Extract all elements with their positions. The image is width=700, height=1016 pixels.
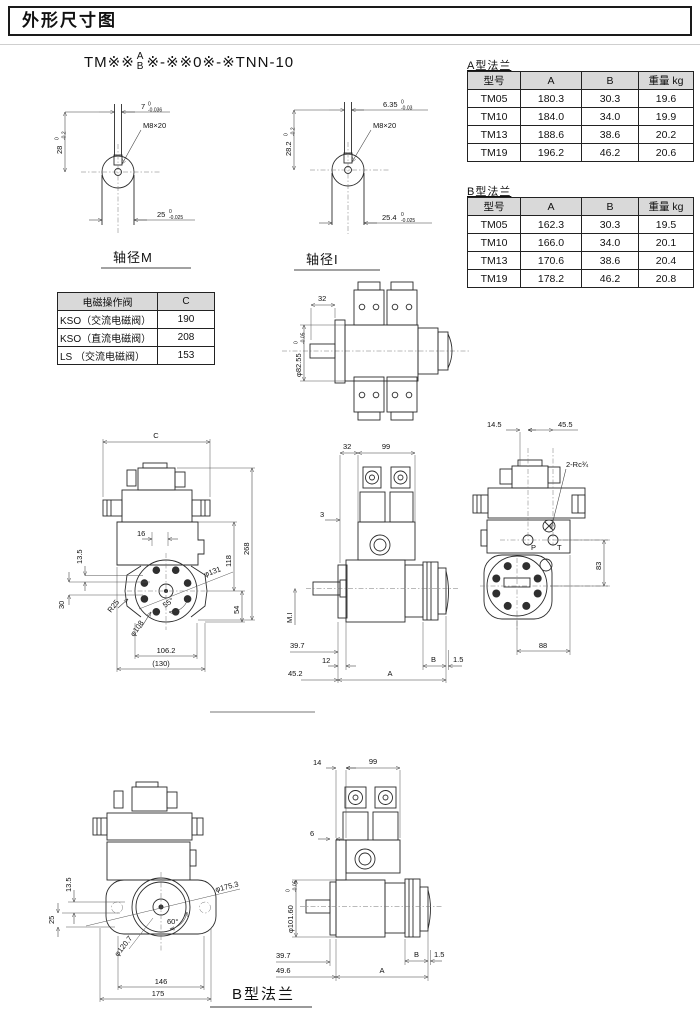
page-title: 外形尺寸图: [8, 6, 692, 36]
dim-d120-7: φ120.7: [112, 934, 134, 958]
table-cell: 46.2: [582, 144, 639, 162]
table-row: TM19178.246.220.8: [468, 270, 694, 288]
table-row: TM10166.034.020.1: [468, 234, 694, 252]
table-cell: TM10: [468, 108, 521, 126]
col-header: B: [582, 198, 639, 216]
table-row: TM19196.246.220.6: [468, 144, 694, 162]
table-cell: 180.3: [521, 90, 582, 108]
flange-b-table: 型号 A B 重量 kg TM05162.330.319.5 TM10166.0…: [467, 197, 694, 288]
b-flange-caption: B型法兰: [232, 983, 295, 1004]
front-view-b-flange: φ175.3 φ120.7 60° 13.5 25 146 175: [30, 740, 290, 1008]
dim-54: 54: [232, 606, 241, 614]
dimension-drawing-page: 外形尺寸图 TM※※ A B ※-※※0※-※TNN-10 7 0: [0, 0, 700, 1016]
shaft-i-dimensions: 6.35 0 -0.03 28.2 0 -0.2 M8×20 25.4 0 -0…: [284, 100, 433, 225]
dim-16: 16: [137, 529, 145, 538]
dim-175: 175: [152, 989, 165, 998]
table-cell: 46.2: [582, 270, 639, 288]
dim-39-7: 39.7: [290, 641, 305, 650]
dim-key-width-tol-lower: -0.036: [148, 108, 162, 114]
dim-106-2: 106.2: [157, 646, 176, 655]
dim-14: 14: [313, 758, 321, 767]
dim-height-tol-lower: -0.2: [62, 131, 68, 140]
table-cell: 20.6: [639, 144, 694, 162]
table-cell: 20.2: [639, 126, 694, 144]
front-a-dimensions: C 16 268 118 54 13.5 30 φ131 R25 φ108 55…: [57, 431, 255, 672]
table-cell: TM05: [468, 90, 521, 108]
shaft-m-dimensions: 7 0 -0.036 28 0 -0.2 M8×20 25 0 -0.025: [55, 102, 196, 222]
table-cell: 196.2: [521, 144, 582, 162]
dim-b: B: [414, 950, 419, 959]
dim-key-width-tol-lower: -0.03: [401, 106, 413, 112]
table-cell: KSO（交流电磁阀）: [58, 311, 158, 329]
dim-99: 99: [382, 442, 390, 451]
dim-d175-3: φ175.3: [214, 879, 239, 893]
front-b-dimensions: φ175.3 φ120.7 60° 13.5 25 146 175: [47, 877, 240, 1002]
table-cell: 38.6: [582, 126, 639, 144]
table-cell: 19.6: [639, 90, 694, 108]
table-cell: 34.0: [582, 108, 639, 126]
model-code-prefix: TM※※: [84, 53, 135, 71]
dim-45-2: 45.2: [288, 669, 303, 678]
dim-c: C: [153, 431, 159, 440]
table-row: TM10184.034.019.9: [468, 108, 694, 126]
dim-146: 146: [155, 977, 168, 986]
front-b-outline: [62, 782, 216, 952]
col-header: A: [521, 72, 582, 90]
thread-label: M8×20: [143, 121, 166, 130]
pump-top-view: 32 φ82.55 0 -0.05: [278, 278, 474, 424]
dim-height: 28.2: [284, 141, 293, 156]
dim-diameter-tol-lower: -0.05: [301, 332, 307, 344]
table-cell: TM05: [468, 216, 521, 234]
dim-99: 99: [369, 757, 377, 766]
dim-32: 32: [318, 294, 326, 303]
pump-top-outline: [282, 282, 470, 420]
col-header: 型号: [468, 198, 521, 216]
table-cell: TM13: [468, 126, 521, 144]
dim-a: A: [387, 669, 392, 678]
pump-top-dimensions: 32 φ82.55 0 -0.05: [294, 294, 346, 381]
col-header: C: [158, 293, 215, 311]
dim-3: 3: [320, 510, 324, 519]
dim-diameter: φ82.55: [294, 353, 303, 377]
col-header: B: [582, 72, 639, 90]
col-header: 电磁操作阀: [58, 293, 158, 311]
valve-table: 电磁操作阀 C KSO（交流电磁阀）190 KSO（直流电磁阀）208 LS （…: [57, 292, 215, 365]
rear-outline: [473, 448, 610, 630]
table-cell: 184.0: [521, 108, 582, 126]
dim-diameter: φ101.60: [286, 905, 295, 933]
table-cell: 188.6: [521, 126, 582, 144]
dim-diameter-tol-lower: -0.025: [169, 215, 183, 221]
shaft-m-caption: 轴径M: [113, 250, 153, 265]
table-cell: LS （交流电磁阀）: [58, 347, 158, 365]
dim-d108: φ108: [128, 619, 145, 638]
table-row: KSO（直流电磁阀）208: [58, 329, 215, 347]
table-cell: 20.1: [639, 234, 694, 252]
table-cell: 20.4: [639, 252, 694, 270]
flange-a-table: 型号 A B 重量 kg TM05180.330.319.6 TM10184.0…: [467, 71, 694, 162]
table-cell: 30.3: [582, 216, 639, 234]
table-cell: 153: [158, 347, 215, 365]
table-row: TM05162.330.319.5: [468, 216, 694, 234]
dim-45-5: 45.5: [558, 420, 573, 429]
dim-88: 88: [539, 641, 547, 650]
model-code-ab-stack: A B: [137, 52, 145, 72]
table-cell: 19.5: [639, 216, 694, 234]
dim-height: 28: [55, 146, 64, 154]
dim-m-i: M.I: [285, 613, 294, 623]
b-flange-caption-underline: [210, 1006, 312, 1008]
table-header-row: 电磁操作阀 C: [58, 293, 215, 311]
table-cell: TM19: [468, 144, 521, 162]
table-cell: 34.0: [582, 234, 639, 252]
table-cell: 190: [158, 311, 215, 329]
port-p-label: P: [531, 543, 536, 552]
dim-83: 83: [594, 562, 603, 570]
dim-12: 12: [322, 656, 330, 665]
dim-39-7: 39.7: [276, 951, 291, 960]
table-cell: TM19: [468, 270, 521, 288]
table-row: LS （交流电磁阀）153: [58, 347, 215, 365]
dim-1-5: 1.5: [434, 950, 444, 959]
table-cell: 178.2: [521, 270, 582, 288]
port-thread-label: 2-Rc¾: [566, 460, 589, 469]
table-cell: 170.6: [521, 252, 582, 270]
dim-b: B: [431, 655, 436, 664]
rear-port-view: 14.5 45.5 2-Rc¾ P T 83 88: [460, 418, 700, 684]
dim-130: (130): [152, 659, 170, 668]
dim-height-tol-lower: -0.2: [291, 127, 297, 136]
table-cell: 208: [158, 329, 215, 347]
shaft-i-drawing: 6.35 0 -0.03 28.2 0 -0.2 M8×20 25.4 0 -0…: [250, 92, 450, 282]
dim-25: 25: [47, 916, 56, 924]
table-cell: 166.0: [521, 234, 582, 252]
table-cell: 20.8: [639, 270, 694, 288]
dim-diameter-tol-lower: -0.025: [401, 218, 415, 224]
side-view-b: 14 99 6 φ101.60 0 -0.05 39.7 49.6 A B 1.…: [268, 740, 510, 998]
dim-angle-60: 60°: [167, 917, 178, 926]
dim-d131: φ131: [203, 564, 222, 578]
side-b-outline: [300, 787, 443, 937]
dim-r25: R25: [105, 598, 121, 614]
dim-32: 32: [343, 442, 351, 451]
table-cell: 38.6: [582, 252, 639, 270]
thread-label: M8×20: [373, 121, 396, 130]
table-cell: 30.3: [582, 90, 639, 108]
dim-a: A: [379, 966, 384, 975]
shaft-i-caption: 轴径I: [306, 252, 339, 267]
dim-key-width: 7: [141, 102, 145, 111]
table-cell: TM10: [468, 234, 521, 252]
side-view-a: 32 99 3 M.I 39.7 12 45.2 A B 1.5: [288, 425, 478, 695]
col-header: 重量 kg: [639, 198, 694, 216]
table-row: TM05180.330.319.6: [468, 90, 694, 108]
dim-13-5: 13.5: [75, 549, 84, 564]
dim-diameter-tol-upper: 0: [294, 341, 300, 344]
section-divider: [210, 711, 315, 713]
dim-diameter-tol-upper: 0: [286, 889, 292, 892]
dim-diameter-tol-lower: -0.05: [293, 880, 299, 892]
table-row: TM13188.638.620.2: [468, 126, 694, 144]
table-row: KSO（交流电磁阀）190: [58, 311, 215, 329]
dim-key-width: 6.35: [383, 100, 398, 109]
dim-118: 118: [224, 555, 233, 567]
dim-13-5: 13.5: [64, 877, 73, 892]
dim-6: 6: [310, 829, 314, 838]
table-header-row: 型号 A B 重量 kg: [468, 72, 694, 90]
title-divider: [0, 44, 700, 45]
dim-30: 30: [57, 601, 66, 609]
table-cell: 162.3: [521, 216, 582, 234]
table-cell: TM13: [468, 252, 521, 270]
table-row: TM13170.638.620.4: [468, 252, 694, 270]
dim-14-5: 14.5: [487, 420, 502, 429]
dim-diameter: 25: [157, 210, 165, 219]
table-header-row: 型号 A B 重量 kg: [468, 198, 694, 216]
front-view-a-flange: C 16 268 118 54 13.5 30 φ131 R25 φ108 55…: [55, 425, 295, 705]
side-b-dimensions: 14 99 6 φ101.60 0 -0.05 39.7 49.6 A B 1.…: [276, 757, 444, 981]
port-t-label: T: [557, 543, 562, 552]
col-header: 重量 kg: [639, 72, 694, 90]
dim-height-tol-upper: 0: [284, 133, 290, 136]
table-cell: KSO（直流电磁阀）: [58, 329, 158, 347]
model-code-suffix: ※-※※0※-※TNN-10: [146, 53, 294, 71]
model-code: TM※※ A B ※-※※0※-※TNN-10: [84, 52, 294, 72]
dim-height-tol-upper: 0: [55, 137, 61, 140]
dim-49-6: 49.6: [276, 966, 291, 975]
rear-dimensions: 14.5 45.5 2-Rc¾ P T 83 88: [487, 420, 608, 655]
col-header: A: [521, 198, 582, 216]
shaft-m-drawing: 7 0 -0.036 28 0 -0.2 M8×20 25 0 -0.025 轴…: [55, 92, 255, 277]
table-cell: 19.9: [639, 108, 694, 126]
col-header: 型号: [468, 72, 521, 90]
dim-diameter: 25.4: [382, 213, 397, 222]
model-code-b: B: [137, 62, 145, 72]
side-a-outline: [306, 467, 460, 622]
dim-268: 268: [242, 542, 251, 555]
